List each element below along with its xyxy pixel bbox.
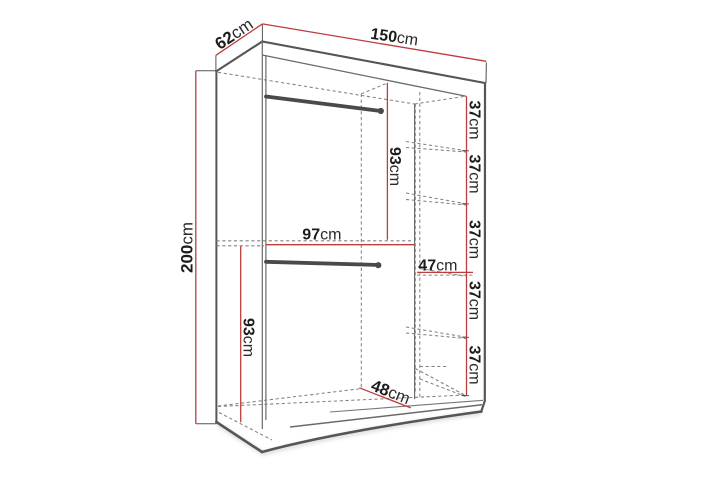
svg-text:37cm: 37cm: [466, 281, 483, 320]
svg-text:37cm: 37cm: [466, 155, 483, 194]
svg-text:93cm: 93cm: [386, 147, 403, 186]
svg-text:97cm: 97cm: [302, 227, 341, 244]
svg-text:37cm: 37cm: [466, 101, 483, 140]
svg-text:37cm: 37cm: [466, 346, 483, 385]
svg-text:200cm: 200cm: [177, 222, 196, 273]
svg-text:47cm: 47cm: [418, 258, 457, 275]
svg-text:93cm: 93cm: [239, 318, 256, 357]
svg-text:37cm: 37cm: [466, 220, 483, 259]
